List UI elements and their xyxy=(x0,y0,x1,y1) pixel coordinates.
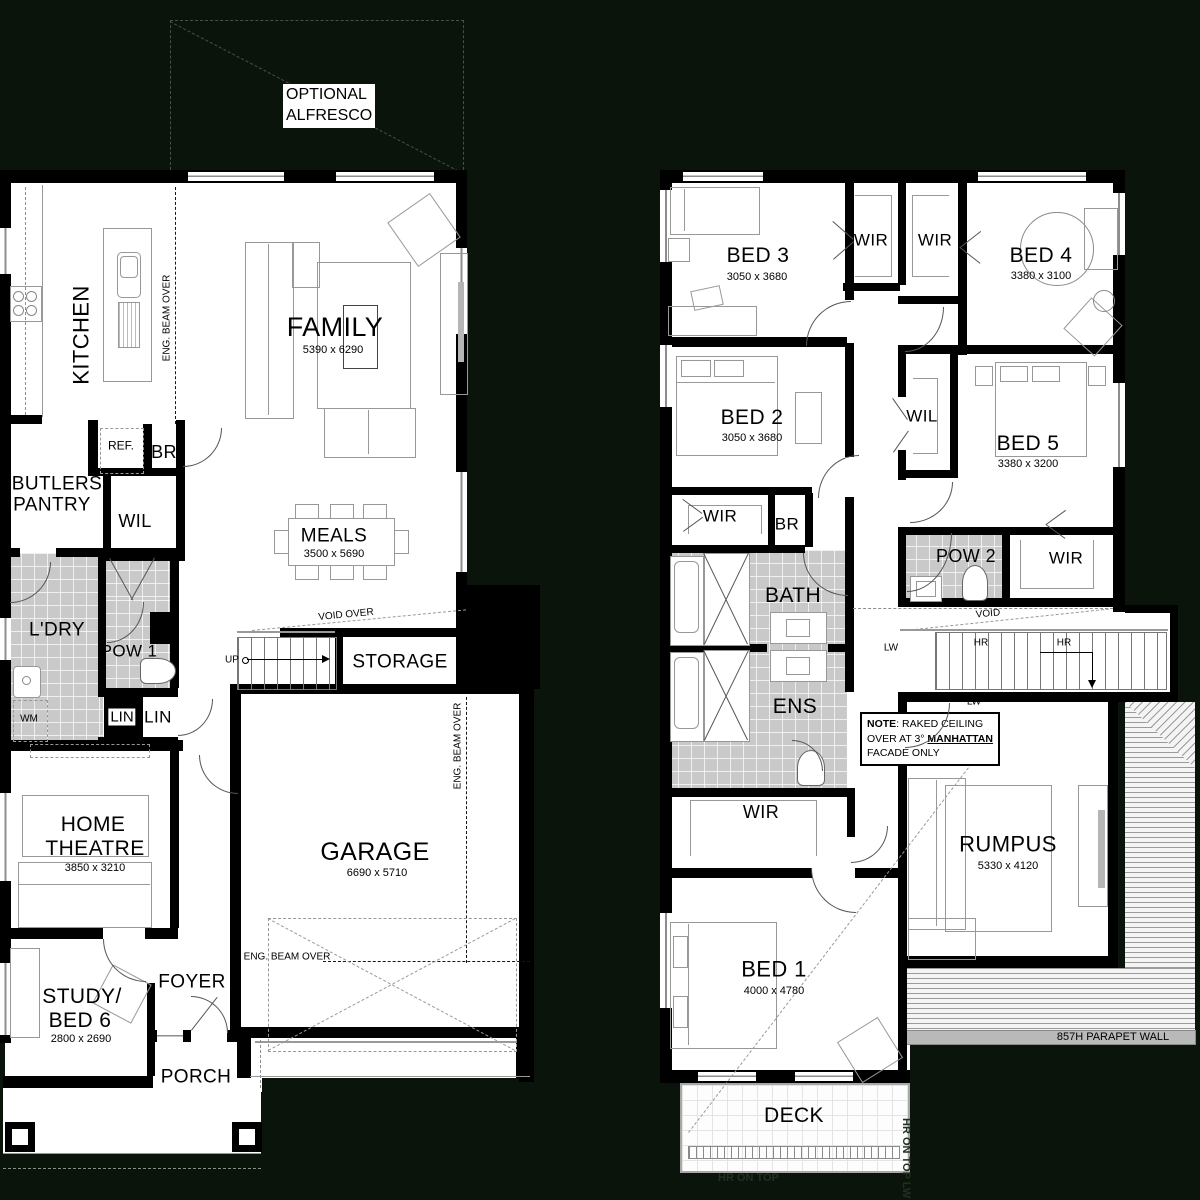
cooktop-burner xyxy=(26,305,37,316)
ens-tub-inner xyxy=(674,657,699,729)
up-arrowhead xyxy=(322,655,330,663)
wall xyxy=(137,697,143,740)
laundry-sink-drain xyxy=(22,676,31,685)
room-label-wir5: WIR xyxy=(743,802,779,822)
stair-rail xyxy=(237,631,335,633)
room-label-study-2: BED 6 xyxy=(49,1009,112,1033)
wall xyxy=(147,1030,157,1042)
bed4-bed xyxy=(1084,208,1118,270)
room-dims-bed4: 3380 x 3100 xyxy=(1011,270,1072,282)
room-label-deck: DECK xyxy=(764,1104,824,1128)
wall xyxy=(0,548,20,557)
room-label-butlers-1: BUTLERS xyxy=(12,473,102,494)
rumpus-tv xyxy=(1098,810,1105,888)
wall xyxy=(660,788,855,797)
bed2-pillow xyxy=(681,360,711,377)
room-label-bed4: BED 4 xyxy=(1010,244,1073,268)
wall xyxy=(958,170,967,355)
room-label-br: BR xyxy=(151,442,177,462)
alfresco-label: OPTIONAL ALFRESCO xyxy=(283,84,375,128)
room-label-kitchen: KITCHEN xyxy=(70,285,95,384)
wall xyxy=(845,343,854,457)
porch-dashed-outline xyxy=(3,1168,261,1169)
wall xyxy=(183,1030,191,1042)
bed3-side-table xyxy=(668,238,690,262)
label-lw-left: LW xyxy=(884,642,898,653)
wall xyxy=(3,1076,153,1088)
stair-rail xyxy=(900,629,1168,631)
beam-label: ENG. BEAM OVER xyxy=(161,275,172,362)
wall xyxy=(660,545,805,553)
room-dims-bed1: 4000 x 4780 xyxy=(744,985,805,997)
bed4-table xyxy=(1093,290,1115,312)
theatre-screen xyxy=(30,744,150,758)
wall xyxy=(898,170,906,285)
beam-label: ENG. BEAM OVER xyxy=(452,703,463,790)
roof-terrace xyxy=(905,968,1195,1030)
room-label-wil: WIL xyxy=(118,511,151,531)
stair-arrow xyxy=(1040,652,1092,653)
room-label-ldry: L'DRY xyxy=(29,619,85,640)
room-label-garage: GARAGE xyxy=(320,838,429,866)
window xyxy=(0,793,11,881)
room-dims-study: 2800 x 2690 xyxy=(51,1033,112,1045)
wall xyxy=(805,493,813,547)
room-label-wir2: WIR xyxy=(918,230,952,249)
wall xyxy=(227,1030,239,1042)
sofa-line xyxy=(936,780,937,926)
driveway-edge xyxy=(250,1076,530,1077)
wall xyxy=(98,557,106,688)
window xyxy=(456,472,467,572)
room-label-porch: PORCH xyxy=(161,1066,232,1087)
wall xyxy=(88,420,98,472)
stairs-up xyxy=(237,637,337,690)
wall xyxy=(145,928,178,939)
island-sink-bowl xyxy=(120,256,138,278)
bed5-pillow xyxy=(1032,366,1060,382)
wall xyxy=(898,527,906,607)
bed5-pillow xyxy=(1000,366,1028,382)
room-label-rumpus: RUMPUS xyxy=(959,833,1057,858)
room-dims-family: 5390 x 6290 xyxy=(303,344,364,356)
room-label-lin1: LIN xyxy=(108,709,135,726)
room-label-theatre-1: HOME xyxy=(61,813,126,837)
wall xyxy=(660,868,812,878)
bed5-side-table xyxy=(1088,366,1106,386)
label-hr-left: HR xyxy=(974,637,988,648)
chair xyxy=(274,530,289,554)
room-dims-theatre: 3850 x 3210 xyxy=(65,862,126,874)
wall xyxy=(672,487,812,495)
deck-note-right: HR ON TOP LW xyxy=(900,1118,912,1198)
rumpus-rug xyxy=(945,785,1052,932)
wall xyxy=(170,751,179,928)
sofa-line xyxy=(268,244,269,415)
room-dims-bed3: 3050 x 3680 xyxy=(727,271,788,283)
wall xyxy=(950,352,958,478)
deck-note-bottom: HR ON TOP xyxy=(718,1172,779,1184)
wall xyxy=(56,548,178,557)
wall xyxy=(230,684,241,1036)
room-label-butlers-2: PANTRY xyxy=(13,494,91,515)
room-label-wir3: WIR xyxy=(703,506,737,525)
porch-slab xyxy=(3,1088,261,1154)
pow1-vanity xyxy=(150,612,174,644)
room-label-study-1: STUDY/ xyxy=(42,985,121,1009)
window xyxy=(978,172,1086,181)
parapet-label: 857H PARAPET WALL xyxy=(1057,1031,1169,1043)
sofa-line xyxy=(18,884,150,885)
beam-line xyxy=(175,187,176,424)
wall xyxy=(3,928,103,939)
wall xyxy=(519,684,534,1082)
porch-pillar xyxy=(5,1122,35,1152)
up-arrow-line xyxy=(247,659,322,660)
sofa-chaise xyxy=(292,242,320,288)
chair xyxy=(363,504,387,519)
cooktop-burner xyxy=(13,291,24,302)
wall xyxy=(1170,605,1178,702)
room-label-br: BR xyxy=(775,514,799,533)
stair-arrow xyxy=(1092,652,1093,680)
window xyxy=(683,172,763,181)
label-up: UP xyxy=(225,654,239,665)
sliding-door xyxy=(336,172,434,181)
wall xyxy=(898,296,960,304)
room-dims-bed5: 3380 x 3200 xyxy=(998,458,1059,470)
bed3-pillow-line xyxy=(684,189,685,231)
cooktop-burner xyxy=(26,291,37,302)
wall xyxy=(828,644,854,652)
bed1-pillow-line xyxy=(688,924,689,1045)
room-label-bed1: BED 1 xyxy=(741,958,807,983)
drainer xyxy=(118,302,140,348)
bed2-desk xyxy=(795,392,822,444)
wall xyxy=(237,1038,251,1078)
room-label-bath: BATH xyxy=(765,584,821,608)
room-label-storage: STORAGE xyxy=(352,651,447,672)
porch-pillar xyxy=(232,1122,262,1152)
porch-dashed-outline xyxy=(260,1040,261,1088)
wall xyxy=(1108,694,1118,962)
wall xyxy=(898,352,906,397)
room-label-pow1: POW 1 xyxy=(101,641,158,660)
chair xyxy=(330,504,354,519)
desk xyxy=(10,948,40,1038)
cooktop-burner xyxy=(13,305,24,316)
tv-screen xyxy=(458,282,464,362)
bed3-desk xyxy=(668,306,757,336)
room-label-wir1: WIR xyxy=(854,230,888,249)
room-label-bed5: BED 5 xyxy=(997,432,1060,456)
note-text-3: FACADE ONLY xyxy=(867,747,940,759)
window xyxy=(795,1072,853,1081)
room-label-pow2: POW 2 xyxy=(936,546,996,566)
room-dims-meals: 3500 x 5690 xyxy=(304,548,365,560)
bed2-line xyxy=(677,382,775,383)
chair xyxy=(295,565,319,580)
sliding-door xyxy=(188,172,284,181)
room-dims-rumpus: 5330 x 4120 xyxy=(978,860,1039,872)
bed5-side-table xyxy=(975,366,993,386)
chair xyxy=(295,504,319,519)
room-label-bed2: BED 2 xyxy=(721,406,784,430)
stairs-down xyxy=(935,632,1167,690)
window xyxy=(660,345,672,407)
bath-basin xyxy=(786,619,810,637)
room-label-meals: MEALS xyxy=(301,525,367,546)
porch-edge xyxy=(3,1153,261,1154)
ens-basin xyxy=(786,657,810,675)
bath-tub-inner xyxy=(674,561,699,633)
deck-rail xyxy=(688,1146,900,1159)
room-label-ens: ENS xyxy=(773,695,817,719)
wall xyxy=(516,1038,530,1078)
room-label-wil: WIL xyxy=(906,406,937,425)
room-label-family: FAMILY xyxy=(287,312,383,342)
room-label-foyer: FOYER xyxy=(158,971,225,992)
wall xyxy=(843,283,900,291)
room-label-theatre-2: THEATRE xyxy=(45,837,144,861)
sofa-small xyxy=(324,408,416,458)
pow2-toilet xyxy=(962,565,988,601)
chair xyxy=(363,565,387,580)
room-label-lin2: LIN xyxy=(144,707,172,726)
note-manhattan: MANHATTAN xyxy=(927,733,993,745)
window xyxy=(1113,383,1125,467)
room-dims-garage: 6690 x 5710 xyxy=(347,867,408,879)
floorplan-page: { "ground_floor": { "rooms": { "kitchen"… xyxy=(0,0,1200,1200)
wall xyxy=(1002,535,1010,601)
bed1-pillow xyxy=(673,936,688,968)
stair-arrowhead xyxy=(1088,680,1096,688)
room-label-bed3: BED 3 xyxy=(727,244,790,268)
sidelight-window xyxy=(157,1032,183,1040)
room-dims-bed2: 3050 x 3680 xyxy=(722,432,783,444)
note-title: NOTE xyxy=(867,718,896,730)
label-ref: REF. xyxy=(108,439,134,452)
sofa-line xyxy=(368,410,369,454)
wall xyxy=(103,473,111,557)
label-void: VOID xyxy=(975,607,1000,620)
wall-mass xyxy=(456,585,540,689)
wall xyxy=(898,692,1178,702)
room-label-wir4: WIR xyxy=(1049,548,1083,567)
label-wm: WM xyxy=(20,713,38,724)
label-hr-right: HR xyxy=(1057,637,1071,648)
chair xyxy=(394,530,409,554)
bed1-pillow xyxy=(673,996,688,1028)
bed2-pillow xyxy=(714,360,744,377)
label-lw-bottom: LW xyxy=(967,696,981,707)
wall xyxy=(898,470,958,478)
window xyxy=(0,618,11,660)
alfresco-label-line2: ALFRESCO xyxy=(286,107,372,124)
pow1-toilet xyxy=(140,658,176,684)
chair xyxy=(330,565,354,580)
alfresco-label-line1: OPTIONAL xyxy=(286,86,367,103)
wall xyxy=(98,688,178,697)
garage-door xyxy=(255,1041,517,1043)
